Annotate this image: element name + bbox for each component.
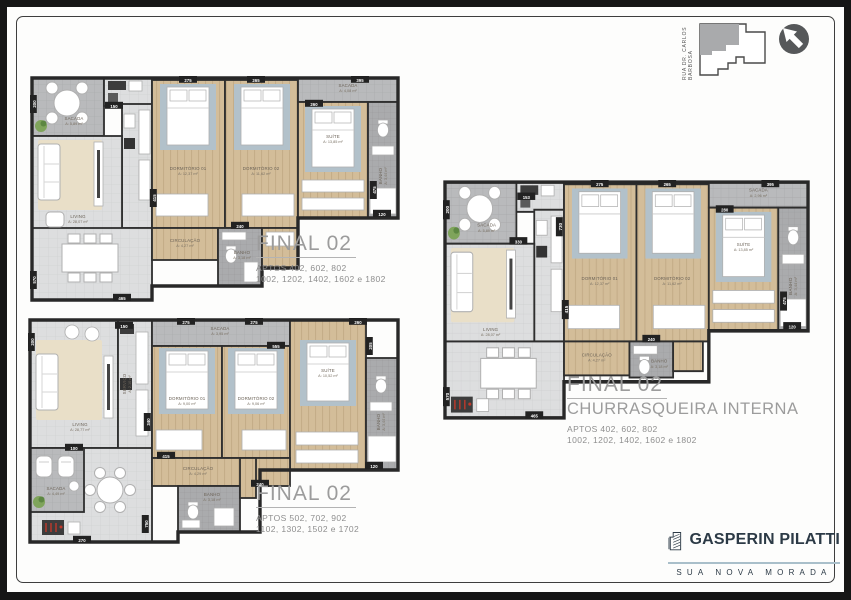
room-circulacao: CIRCULAÇÃO A: 4,27 m² [152, 228, 218, 260]
room-kitchen [122, 104, 152, 228]
room-sacada-suite: SACADA A: 4,08 m² [298, 78, 398, 102]
grill-corner [42, 520, 80, 535]
svg-text:A: 2,96 m²: A: 2,96 m² [750, 193, 768, 198]
svg-text:BANHO: BANHO [376, 413, 381, 430]
wardrobe [242, 430, 286, 450]
svg-text:DORMITÓRIO 02: DORMITÓRIO 02 [238, 396, 275, 401]
double-bed [300, 340, 356, 406]
svg-text:555: 555 [272, 344, 280, 349]
svg-text:A: 28,07 m²: A: 28,07 m² [68, 220, 88, 224]
svg-text:SACADA: SACADA [211, 326, 230, 331]
svg-text:A: 13,85 m²: A: 13,85 m² [734, 247, 754, 252]
svg-text:A: 2,10 m²: A: 2,10 m² [128, 375, 132, 393]
pouf [85, 327, 99, 341]
double-bed [305, 106, 361, 172]
brand-tagline: SUA NOVA MORADA [668, 568, 840, 577]
svg-text:280: 280 [721, 208, 729, 213]
wardrobe [296, 432, 358, 445]
svg-text:A: 4,27 m²: A: 4,27 m² [176, 244, 194, 248]
svg-text:DORMITÓRIO 02: DORMITÓRIO 02 [243, 166, 280, 171]
sofa [36, 354, 58, 410]
svg-text:CIRCULAÇÃO: CIRCULAÇÃO [183, 466, 214, 471]
toilet [788, 227, 799, 245]
plan-title: FINAL 02 [256, 232, 356, 258]
svg-text:A: 5,89 m²: A: 5,89 m² [65, 122, 83, 126]
svg-text:A: 9,00 m²: A: 9,00 m² [178, 402, 196, 406]
svg-text:330: 330 [515, 239, 523, 244]
room-sacada-living: SACADA A: 5,89 m² [32, 78, 104, 136]
wardrobe [713, 310, 775, 323]
dining-table [481, 348, 537, 399]
svg-text:SACADA: SACADA [339, 83, 358, 88]
svg-text:A: 28,07 m²: A: 28,07 m² [481, 332, 501, 337]
room-dormitorio-2: DORMITÓRIO 02 A: 9,06 m² [222, 346, 290, 458]
lounge-chair [58, 456, 74, 477]
plan-caption-c: FINAL 02 CHURRASQUEIRA INTERNA APTOS 402… [567, 373, 798, 445]
room-dormitorio-2: DORMITÓRIO 02 A: 11,62 m² [225, 80, 298, 228]
lounge-chair [36, 456, 52, 477]
sink [370, 402, 392, 411]
site-locator: RUA DR. CARLOS BARBOSA [680, 14, 820, 84]
svg-text:240: 240 [236, 224, 244, 229]
svg-text:DORMITÓRIO 01: DORMITÓRIO 01 [170, 166, 207, 171]
svg-text:SERVIÇO: SERVIÇO [122, 373, 127, 394]
sink [372, 146, 394, 155]
brand-logo: GASPERIN PILATTI SUA NOVA MORADA [668, 522, 840, 577]
svg-text:340: 340 [146, 418, 151, 426]
svg-text:260: 260 [310, 102, 318, 107]
svg-text:DORMITÓRIO 01: DORMITÓRIO 01 [582, 275, 619, 281]
wardrobe [568, 305, 620, 328]
svg-text:A: 3,18 m²: A: 3,18 m² [651, 364, 669, 369]
svg-text:275: 275 [250, 320, 258, 325]
plant-icon [33, 496, 45, 508]
plan-apts-line1: APTOS 402, 602, 802 [567, 424, 798, 434]
svg-text:260: 260 [354, 320, 362, 325]
sink [182, 520, 200, 528]
svg-text:200: 200 [445, 205, 450, 213]
plan-apts-line2: 1002, 1202, 1402, 1602 e 1802 [256, 274, 386, 284]
svg-text:A: 12,37 m²: A: 12,37 m² [178, 172, 198, 176]
svg-text:BANHO: BANHO [378, 167, 383, 184]
closet [240, 458, 256, 498]
svg-text:SUÍTE: SUÍTE [326, 134, 340, 139]
svg-text:415: 415 [162, 454, 170, 459]
svg-text:120: 120 [378, 212, 386, 217]
room-banho-suite: BANHO A: 3,44 m² [778, 208, 808, 331]
svg-text:A: 12,37 m²: A: 12,37 m² [590, 281, 610, 286]
room-dormitorio-1: DORMITÓRIO 01 A: 12,37 m² [564, 184, 636, 341]
room-dormitorio-2: DORMITÓRIO 02 A: 11,62 m² [636, 184, 708, 341]
wardrobe [296, 450, 358, 463]
room-suite: SUÍTE A: 13,85 m² [298, 102, 368, 218]
sink [782, 254, 804, 264]
svg-text:275: 275 [184, 78, 192, 83]
svg-text:A: 11,62 m²: A: 11,62 m² [663, 281, 683, 286]
toilet [188, 502, 199, 519]
room-banho-suite: BANHO A: 3,44 m² [366, 358, 398, 470]
svg-text:100: 100 [70, 446, 78, 451]
plan-apts-line2: 1002, 1202, 1402, 1602 e 1802 [567, 435, 798, 445]
svg-text:DORMITÓRIO 01: DORMITÓRIO 01 [169, 396, 206, 401]
plan-apts-line1: APTOS 502, 702, 902 [256, 513, 359, 523]
wardrobe [713, 290, 775, 303]
room-dormitorio-1: DORMITÓRIO 01 A: 12,37 m² [152, 80, 225, 228]
plan-apts-line2: 1102, 1302, 1502 e 1702 [256, 524, 359, 534]
brand-name: GASPERIN PILATTI [690, 531, 840, 549]
sink [222, 232, 246, 240]
svg-text:A: 3,44 m²: A: 3,44 m² [382, 413, 386, 431]
svg-text:570: 570 [445, 392, 450, 400]
churrasqueira-grill [42, 520, 64, 535]
churrasqueira-grill [451, 397, 473, 413]
room-sacada-living: SACADA A: 5,89 m² [445, 182, 516, 244]
svg-text:730: 730 [558, 222, 563, 230]
svg-text:A: 9,06 m²: A: 9,06 m² [247, 402, 265, 406]
double-bed [160, 84, 216, 150]
building-footprint-map [698, 22, 768, 78]
plan-caption-b: FINAL 02 APTOS 502, 702, 902 1102, 1302,… [256, 482, 359, 534]
logo-divider [668, 562, 840, 564]
svg-text:240: 240 [648, 337, 656, 342]
sofa [38, 144, 60, 200]
svg-text:A: 3,18 m²: A: 3,18 m² [203, 498, 221, 502]
svg-text:120: 120 [370, 464, 378, 469]
armchair [46, 212, 64, 227]
sink [633, 346, 657, 354]
plant-icon [35, 120, 47, 132]
svg-text:A: 10,52 m²: A: 10,52 m² [318, 374, 338, 378]
svg-text:A: 3,44 m²: A: 3,44 m² [793, 276, 798, 295]
toilet [639, 356, 650, 374]
street-name-label: RUA DR. CARLOS BARBOSA [682, 16, 694, 80]
svg-text:270: 270 [78, 538, 86, 543]
svg-text:200: 200 [30, 338, 35, 346]
sofa [451, 252, 473, 311]
svg-text:120: 120 [789, 324, 797, 329]
svg-text:A: 11,62 m²: A: 11,62 m² [251, 172, 271, 176]
shower [214, 508, 234, 526]
svg-text:A: 4,27 m²: A: 4,27 m² [588, 357, 606, 362]
svg-text:415: 415 [152, 194, 157, 202]
svg-text:265: 265 [252, 78, 260, 83]
svg-text:275: 275 [596, 182, 604, 187]
svg-text:DORMITÓRIO 02: DORMITÓRIO 02 [654, 275, 691, 281]
plan-title: FINAL 02 [256, 482, 356, 508]
room-banho-social: BANHO A: 3,18 m² [178, 486, 240, 532]
room-suite: SUÍTE A: 10,52 m² [290, 320, 366, 470]
plant-icon [448, 227, 460, 240]
toilet [376, 376, 387, 393]
svg-text:475: 475 [782, 297, 787, 305]
brochure-sheet: RUA DR. CARLOS BARBOSA SACADA A: 5,89 m² [0, 0, 851, 600]
svg-text:CIRCULAÇÃO: CIRCULAÇÃO [582, 351, 612, 357]
svg-text:150: 150 [110, 104, 118, 109]
wardrobe [242, 194, 294, 216]
svg-text:LIVING: LIVING [70, 214, 86, 219]
svg-text:A: 4,08 m²: A: 4,08 m² [339, 89, 357, 93]
svg-text:A: 5,89 m²: A: 5,89 m² [478, 228, 496, 233]
svg-text:153: 153 [523, 195, 531, 200]
dining-table [62, 234, 118, 282]
svg-text:SACADA: SACADA [65, 116, 84, 121]
wardrobe [302, 180, 364, 192]
svg-text:750: 750 [144, 520, 149, 528]
svg-text:SACADA: SACADA [47, 486, 66, 491]
svg-text:BANHO: BANHO [234, 250, 251, 255]
svg-text:CIRCULAÇÃO: CIRCULAÇÃO [170, 238, 201, 243]
north-arrow-icon [777, 22, 811, 56]
svg-text:465: 465 [118, 296, 126, 301]
svg-text:465: 465 [531, 414, 539, 419]
svg-text:SUÍTE: SUÍTE [321, 368, 335, 373]
svg-text:415: 415 [564, 305, 569, 313]
svg-text:BANHO: BANHO [204, 492, 221, 497]
wardrobe [156, 430, 202, 450]
plan-title: FINAL 02 [567, 373, 667, 399]
svg-text:205: 205 [368, 342, 373, 350]
building-logo-icon [668, 522, 684, 558]
svg-text:A: 3,44 m²: A: 3,44 m² [384, 167, 388, 185]
room-living: LIVING A: 28,77 m² [30, 320, 118, 448]
svg-text:395: 395 [767, 182, 775, 187]
room-sacada-suite: SACADA A: 2,96 m² [709, 182, 808, 207]
svg-text:A: 28,77 m²: A: 28,77 m² [70, 428, 90, 432]
room-dormitorio-1: DORMITÓRIO 01 A: 9,00 m² [152, 346, 222, 458]
double-bed [645, 188, 701, 258]
svg-text:570: 570 [32, 276, 37, 284]
double-bed [572, 188, 628, 258]
wardrobe [302, 198, 364, 210]
pouf [65, 325, 79, 339]
svg-text:A: 3,18 m²: A: 3,18 m² [233, 256, 251, 260]
plan-subtitle: CHURRASQUEIRA INTERNA [567, 400, 798, 419]
svg-text:A: 4,29 m²: A: 4,29 m² [189, 472, 207, 476]
plan-caption-a: FINAL 02 APTOS 402, 602, 802 1002, 1202,… [256, 232, 386, 284]
room-suite: SUÍTE A: 13,85 m² [709, 208, 778, 331]
svg-text:A: 3,95 m²: A: 3,95 m² [211, 332, 229, 336]
svg-text:LIVING: LIVING [72, 422, 88, 427]
shower [368, 436, 396, 462]
room-banho-suite: BANHO A: 3,44 m² [368, 102, 398, 218]
svg-text:475: 475 [372, 186, 377, 194]
svg-text:395: 395 [356, 78, 364, 83]
wardrobe [156, 194, 208, 216]
plan-apts-line1: APTOS 402, 602, 802 [256, 263, 386, 273]
closet [673, 341, 703, 371]
svg-text:265: 265 [664, 182, 672, 187]
toilet [378, 120, 389, 137]
svg-text:A: 4,49 m²: A: 4,49 m² [47, 492, 65, 496]
svg-text:SUÍTE: SUÍTE [737, 241, 751, 247]
wardrobe [653, 305, 705, 328]
room-sacada-living: SACADA A: 4,49 m² [30, 448, 84, 512]
svg-text:A: 13,85 m²: A: 13,85 m² [323, 140, 343, 144]
svg-text:200: 200 [32, 100, 37, 108]
side-table [69, 481, 79, 491]
double-bed [234, 84, 290, 150]
svg-text:275: 275 [182, 320, 190, 325]
svg-text:150: 150 [120, 324, 128, 329]
room-circulacao: CIRCULAÇÃO A: 4,27 m² [564, 341, 629, 375]
